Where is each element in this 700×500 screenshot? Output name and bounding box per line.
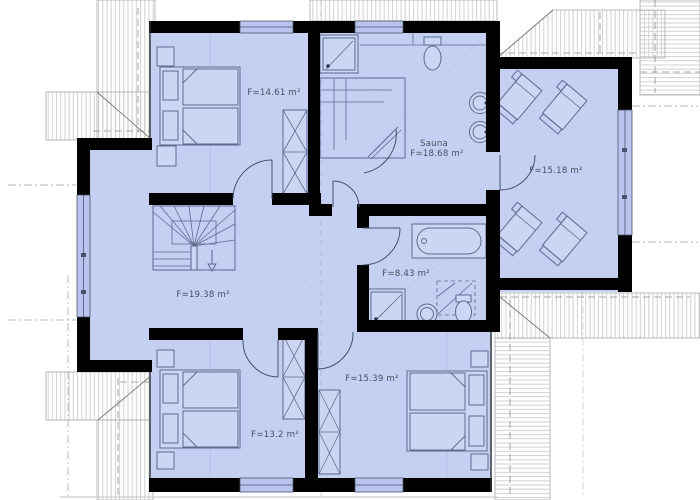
roof-area-bottom-right-band — [495, 293, 700, 338]
roof-strip-bottom-right-vertical — [495, 338, 550, 500]
room-area-label: F=19.38 m² — [176, 290, 229, 300]
roof-strip-bottom-left-vertical — [97, 420, 153, 500]
window — [355, 478, 403, 492]
nightstand-icon — [157, 452, 174, 469]
window — [240, 478, 293, 492]
room-area-label: F=18.68 m² — [410, 149, 463, 159]
roof-strip-top-left-horizontal — [46, 92, 155, 140]
toilet-icon — [424, 37, 441, 70]
double-bed-icon — [160, 67, 240, 145]
room-area-label: F=15.18 m² — [529, 166, 582, 176]
window — [77, 195, 90, 317]
nightstand-icon — [157, 47, 174, 66]
room-area-label: F=8.43 m² — [382, 269, 430, 279]
room-area-label: F=15.39 m² — [345, 374, 398, 384]
nightstand-icon — [157, 350, 174, 367]
window — [355, 21, 403, 33]
toilet-icon — [456, 295, 472, 323]
double-bed-icon — [160, 370, 240, 448]
nightstand-icon — [157, 146, 176, 166]
shower-icon — [320, 35, 358, 73]
window — [240, 21, 293, 33]
roof-area-top-right — [497, 10, 665, 58]
double-bed-icon — [407, 371, 487, 451]
wardrobe-icon — [283, 110, 307, 194]
bathtub-icon — [412, 224, 486, 258]
room-name-label: Sauna — [420, 139, 448, 149]
roof-strip-top-center — [310, 0, 497, 21]
room-area-label: F=14.61 m² — [247, 88, 300, 98]
room-area-label: F=13.2 m² — [251, 430, 299, 440]
roof-strip-bottom-left-horizontal — [46, 372, 153, 420]
nightstand-icon — [471, 351, 488, 367]
wardrobe-icon — [283, 335, 305, 419]
wardrobe-icon — [319, 390, 340, 474]
floor-plan-canvas: F=14.61 m² Sauna F=18.68 m² F=15.18 m² F… — [0, 0, 700, 500]
window — [618, 110, 632, 235]
nightstand-icon — [471, 454, 488, 470]
